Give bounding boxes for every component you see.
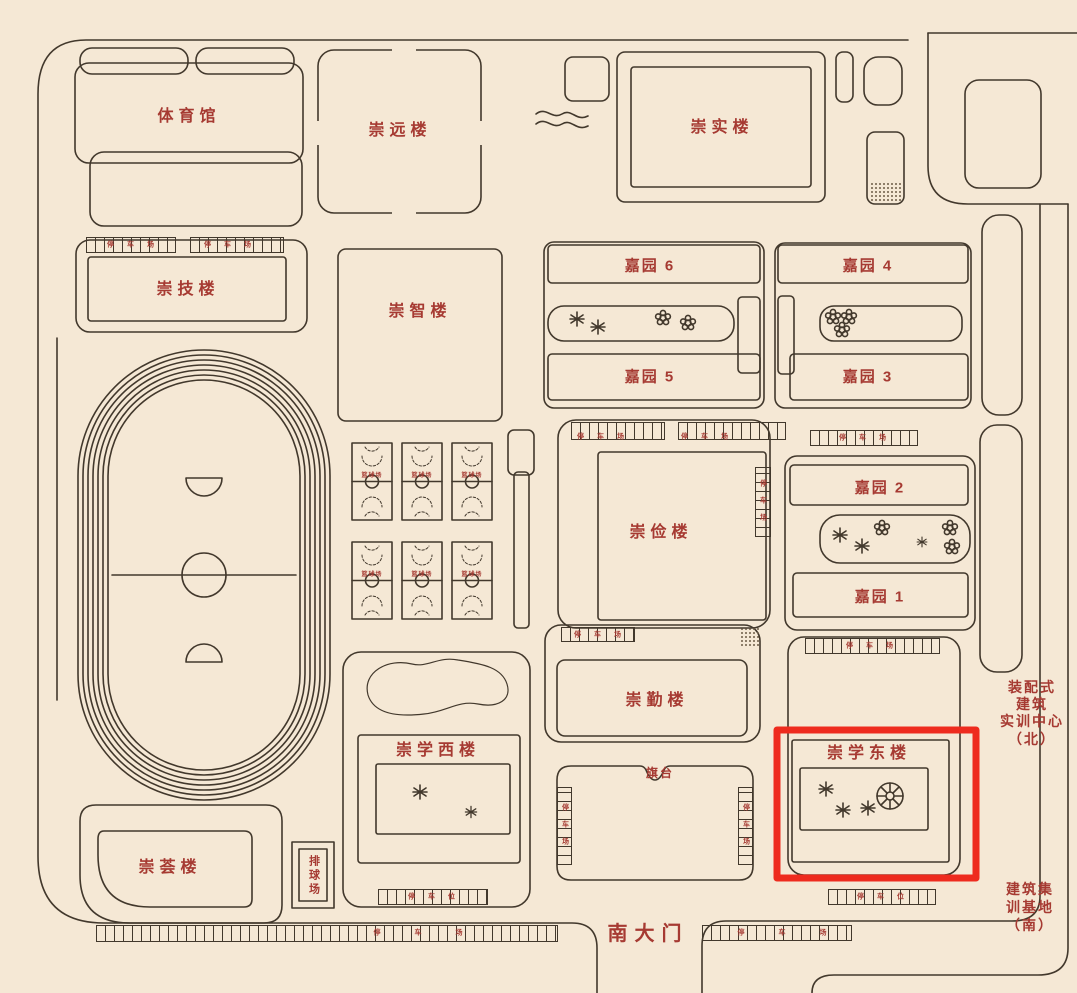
label-training-center-north: 建筑: [1016, 697, 1048, 711]
label-jiayuan-2: 嘉园 2: [855, 481, 906, 496]
label-chongxue-east: 崇学东楼: [827, 746, 911, 762]
basketball-courts: [352, 443, 492, 619]
label-parking: 停车场: [681, 434, 741, 441]
label-training-base-south: （南）: [1006, 918, 1054, 932]
label-training-center-north: （北）: [1008, 732, 1056, 746]
label-chongshi: 崇实楼: [690, 120, 753, 136]
label-chongqin: 崇勤楼: [625, 693, 688, 709]
building-gymnasium: [75, 48, 303, 226]
label-chongxue-west: 崇学西楼: [396, 743, 480, 759]
label-chongji: 崇技楼: [156, 282, 219, 298]
small-building: [565, 57, 609, 101]
label-flag-platform: 旗台: [646, 767, 674, 779]
label-jiayuan-4: 嘉园 4: [843, 259, 894, 274]
building-chongqin: [545, 625, 760, 742]
label-parking: 停车场: [760, 480, 767, 531]
label-parking: 停车场: [577, 434, 637, 441]
label-parking: 停车位: [408, 894, 468, 901]
label-basketball: 篮球场: [411, 572, 432, 578]
label-volleyball: 排球场: [308, 855, 319, 897]
label-basketball: 篮球场: [411, 473, 432, 479]
label-chongzhi: 崇智楼: [388, 304, 451, 320]
label-parking: 停车场: [574, 632, 634, 639]
block-chongxue-west: [343, 652, 530, 907]
label-parking: 停车场: [738, 930, 861, 937]
label-parking: 停车场: [374, 930, 497, 937]
label-south-gate: 南大门: [608, 924, 689, 944]
label-jiayuan-5: 嘉园 5: [625, 370, 676, 385]
label-jiayuan-6: 嘉园 6: [625, 259, 676, 274]
flag-platform: [557, 766, 753, 880]
label-gymnasium: 体育馆: [157, 109, 220, 125]
label-jiayuan-3: 嘉园 3: [843, 370, 894, 385]
label-parking: 停车场: [204, 242, 264, 249]
label-parking: 停车场: [839, 435, 899, 442]
label-chongjian: 崇俭楼: [629, 525, 692, 541]
stipple-patch: [740, 627, 759, 648]
label-training-base-south: 训基地: [1006, 900, 1054, 914]
stipple-patch: [870, 182, 901, 202]
label-basketball: 篮球场: [461, 572, 482, 578]
label-training-base-south: 建筑集: [1006, 882, 1054, 896]
label-parking: 停车场: [846, 643, 906, 650]
label-basketball: 篮球场: [461, 473, 482, 479]
label-parking: 停车场: [562, 804, 569, 855]
label-parking: 停车场: [107, 242, 167, 249]
label-parking: 停车位: [857, 894, 917, 901]
stream: [536, 111, 588, 127]
campus-map: 体育馆 崇远楼 崇实楼 崇技楼 崇智楼 崇俭楼 崇勤楼 崇学西楼 崇学东楼 崇荟…: [0, 0, 1077, 993]
label-basketball: 篮球场: [361, 572, 382, 578]
label-chonghui: 崇荟楼: [138, 860, 201, 876]
label-chongyuan: 崇远楼: [368, 123, 431, 139]
label-parking: 停车场: [743, 804, 750, 855]
label-training-center-north: 实训中心: [1000, 714, 1064, 728]
label-jiayuan-1: 嘉园 1: [855, 590, 906, 605]
running-track: [78, 350, 330, 800]
label-training-center-north: 装配式: [1008, 680, 1056, 694]
label-basketball: 篮球场: [361, 473, 382, 479]
